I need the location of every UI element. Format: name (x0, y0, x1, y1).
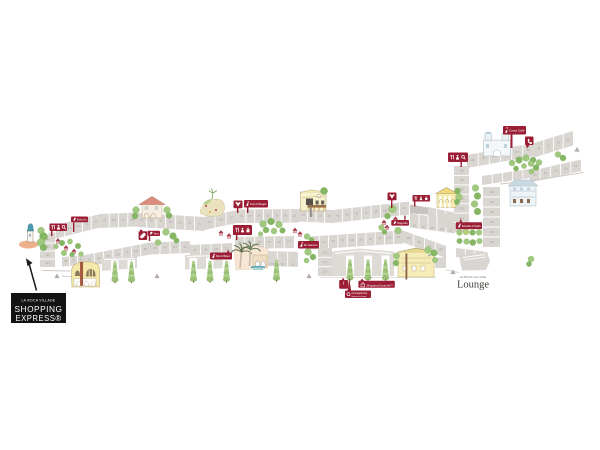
svg-text:137: 137 (430, 226, 435, 230)
svg-text:105: 105 (383, 208, 388, 212)
svg-text:124: 124 (387, 236, 392, 240)
svg-text:Shopping Gourmet™: Shopping Gourmet™ (367, 284, 394, 288)
svg-text:136: 136 (115, 252, 120, 256)
svg-text:134: 134 (564, 166, 569, 170)
svg-text:139: 139 (45, 253, 50, 257)
svg-text:135: 135 (459, 206, 464, 210)
svg-text:117: 117 (318, 214, 323, 218)
svg-text:128: 128 (438, 248, 443, 252)
svg-text:Bureau de change: Bureau de change (352, 296, 367, 298)
svg-text:Vans: Vans (154, 232, 159, 236)
svg-text:131: 131 (350, 238, 355, 242)
svg-text:137: 137 (287, 240, 292, 244)
svg-text:120: 120 (489, 190, 494, 194)
svg-text:118: 118 (489, 240, 494, 244)
svg-text:117: 117 (178, 220, 183, 224)
svg-text:141: 141 (323, 251, 328, 255)
svg-text:138: 138 (489, 200, 494, 204)
svg-text:120: 120 (470, 158, 475, 162)
svg-text:LA ROCA VILLAGE: LA ROCA VILLAGE (460, 275, 486, 279)
svg-text:128: 128 (459, 169, 464, 173)
svg-text:El Ganso: El Ganso (304, 243, 318, 247)
svg-text:Costa Café: Costa Café (509, 128, 525, 132)
svg-text:118: 118 (218, 218, 223, 222)
svg-text:111: 111 (76, 224, 80, 228)
svg-text:117: 117 (173, 245, 178, 249)
svg-text:108: 108 (406, 236, 411, 240)
svg-text:118: 118 (459, 178, 464, 182)
svg-text:123: 123 (323, 269, 328, 273)
svg-text:ChangeGroup: ChangeGroup (352, 292, 368, 295)
svg-text:141: 141 (459, 216, 464, 220)
svg-text:133: 133 (45, 261, 50, 265)
svg-text:127: 127 (489, 230, 494, 234)
svg-text:111: 111 (266, 214, 270, 218)
svg-text:135: 135 (489, 210, 494, 214)
svg-text:Bimba y Lola: Bimba y Lola (77, 218, 87, 222)
svg-text:113: 113 (323, 260, 328, 264)
svg-text:LA ROCA VILLAGE: LA ROCA VILLAGE (22, 299, 57, 303)
svg-text:EXPRESS®: EXPRESS® (16, 314, 62, 323)
svg-text:Mont Blanc: Mont Blanc (216, 254, 231, 258)
svg-text:Lounge: Lounge (457, 280, 489, 291)
svg-text:107: 107 (515, 150, 520, 154)
svg-text:Magnolia: Magnolia (397, 221, 408, 225)
svg-text:103: 103 (112, 218, 117, 222)
svg-text:119: 119 (439, 227, 444, 231)
svg-text:145: 145 (489, 220, 494, 224)
svg-text:135: 135 (214, 247, 219, 251)
svg-text:Pret A Manger: Pret A Manger (250, 202, 267, 206)
svg-text:117: 117 (225, 246, 230, 250)
svg-text:SHOPPING: SHOPPING (15, 305, 63, 314)
svg-text:Marilu Patio: Marilu Patio (462, 224, 481, 228)
svg-text:124: 124 (134, 249, 139, 253)
svg-text:100: 100 (270, 262, 275, 266)
svg-text:121: 121 (168, 220, 173, 224)
